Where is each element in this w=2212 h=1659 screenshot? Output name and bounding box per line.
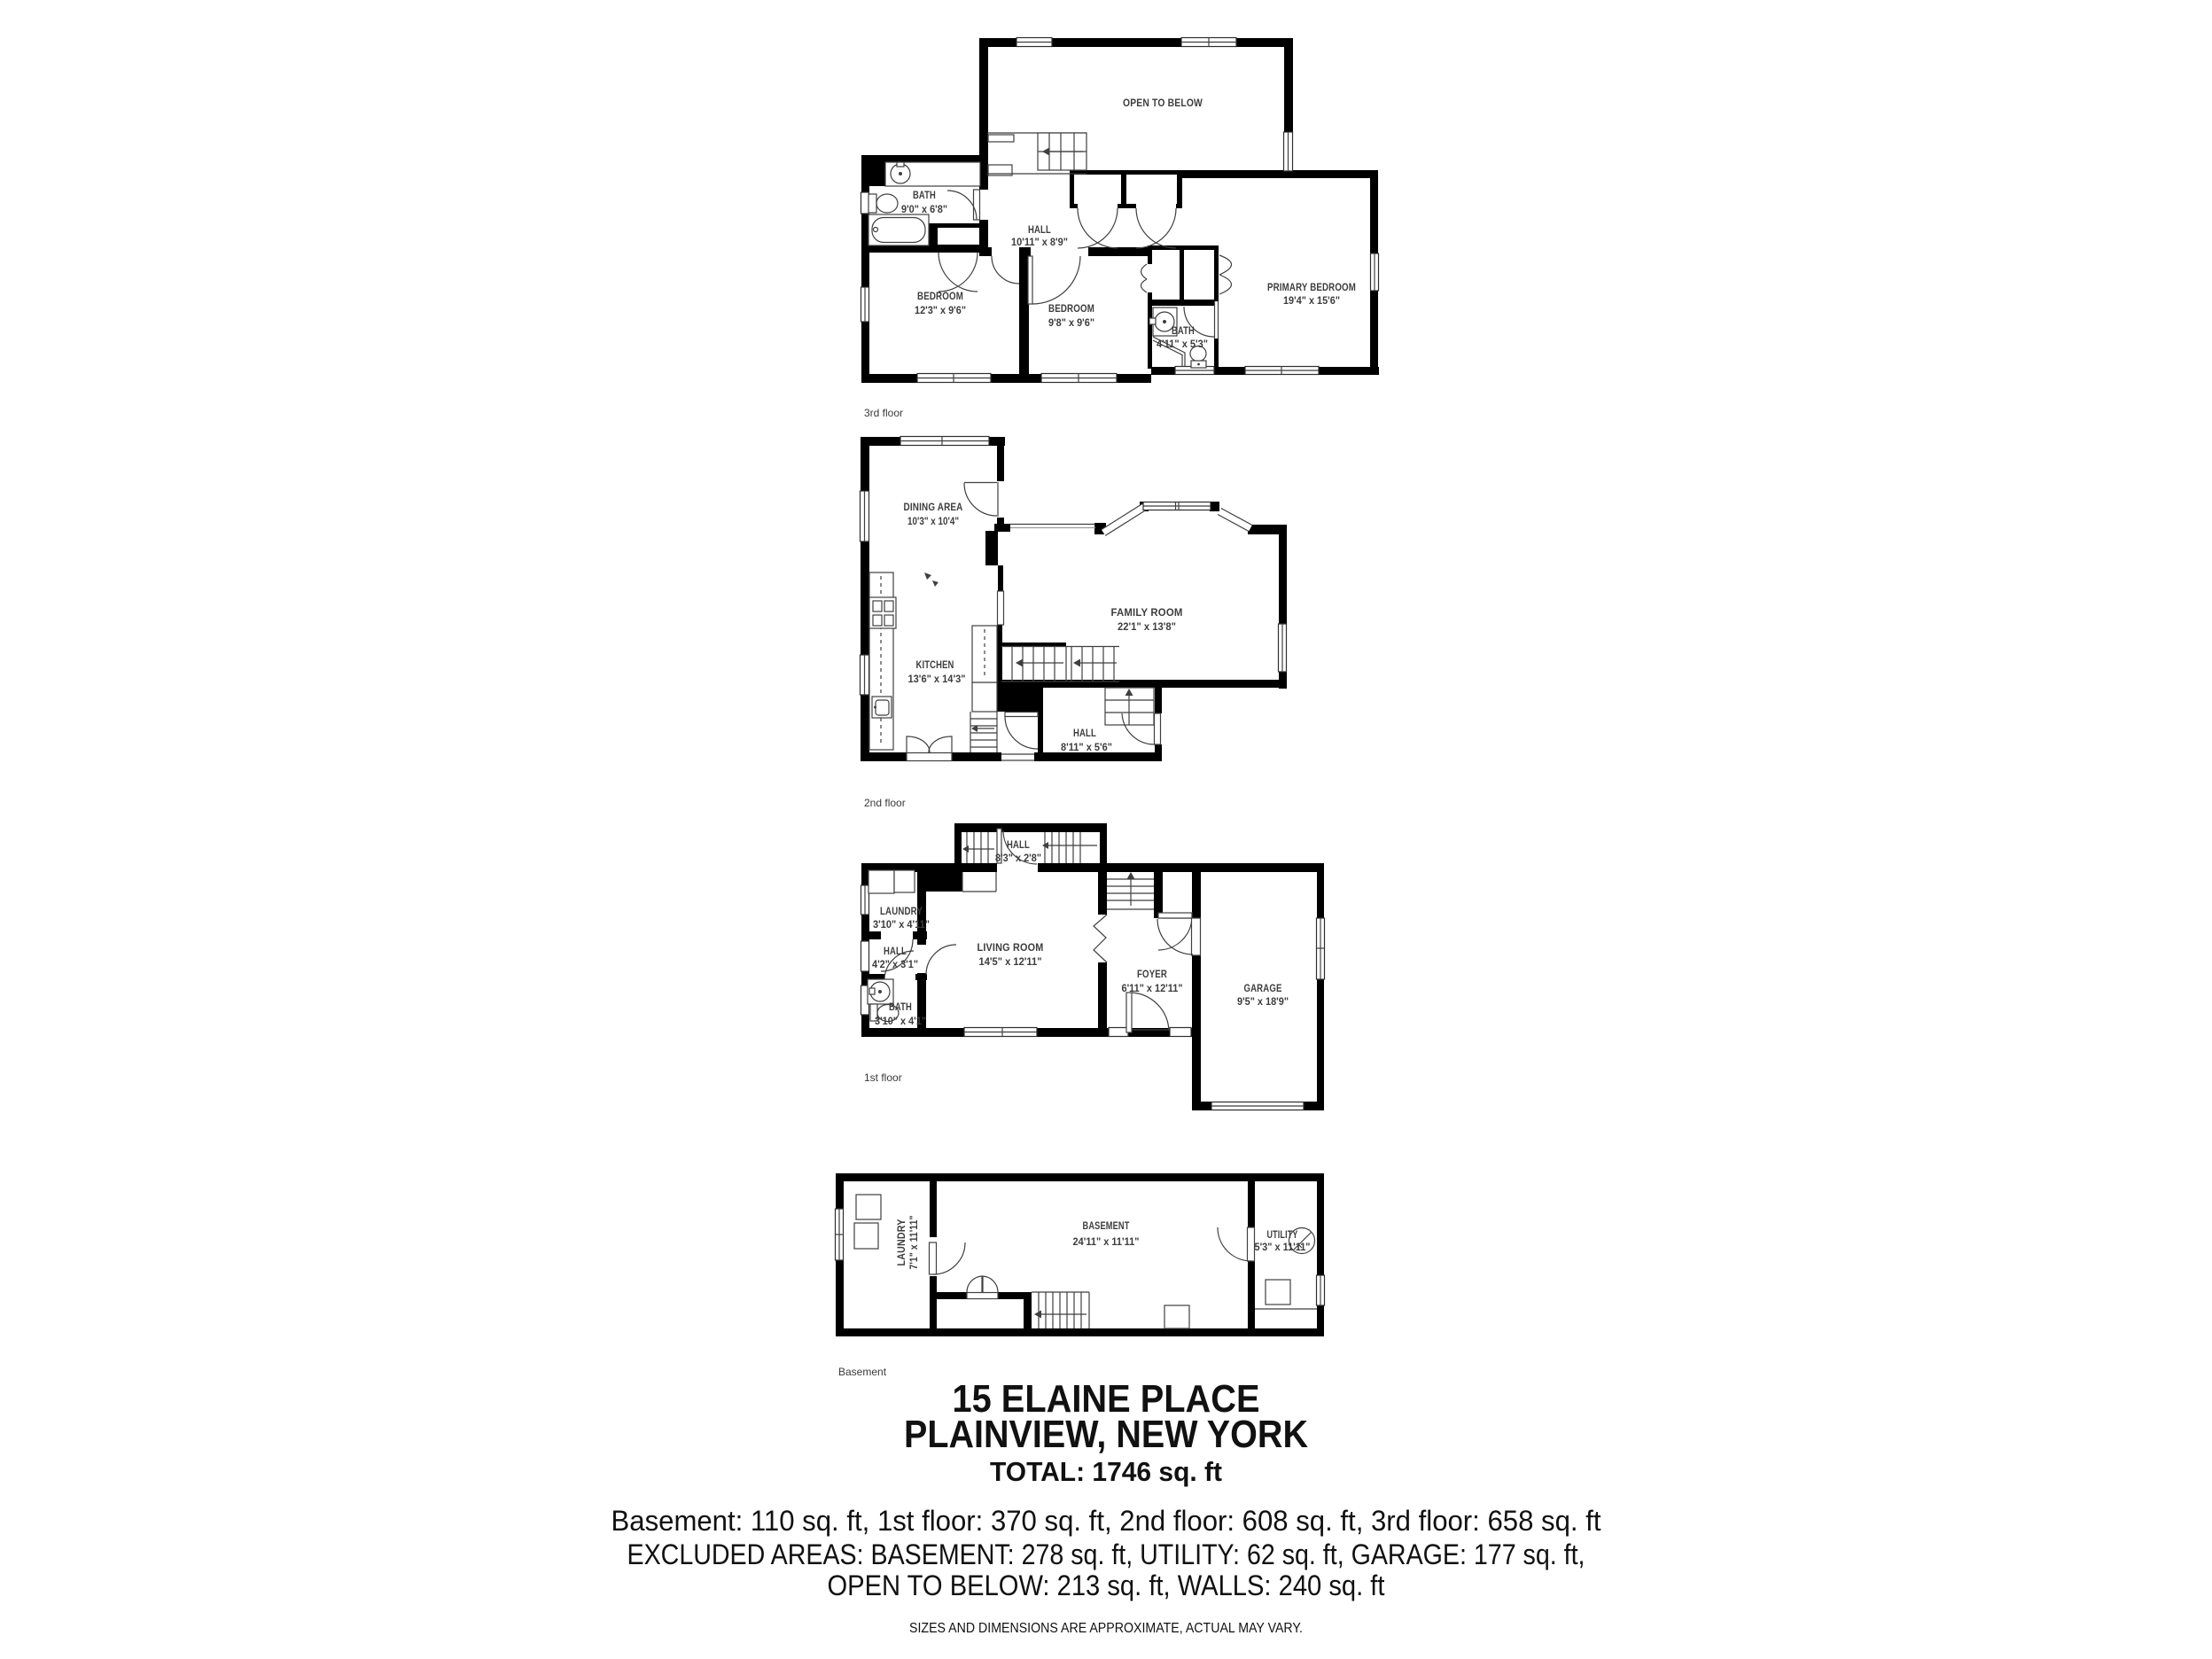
svg-text:9'0" x 6'8": 9'0" x 6'8" (901, 203, 947, 215)
svg-text:6'11" x 12'11": 6'11" x 12'11" (1122, 982, 1183, 994)
svg-text:14'5" x 12'11": 14'5" x 12'11" (979, 955, 1042, 968)
svg-text:8'3" x 2'8": 8'3" x 2'8" (995, 852, 1041, 864)
svg-text:FAMILY ROOM: FAMILY ROOM (1111, 606, 1183, 619)
svg-text:GARAGE: GARAGE (1244, 982, 1282, 994)
svg-text:4'11" x 5'3": 4'11" x 5'3" (1157, 338, 1208, 350)
svg-text:24'11" x 11'11": 24'11" x 11'11" (1073, 1235, 1140, 1248)
svg-text:LAUNDRY: LAUNDRY (880, 905, 923, 917)
svg-text:TOTAL: 1746 sq. ft: TOTAL: 1746 sq. ft (990, 1456, 1222, 1487)
svg-text:HALL: HALL (884, 945, 907, 957)
svg-text:SIZES AND DIMENSIONS ARE APPRO: SIZES AND DIMENSIONS ARE APPROXIMATE, AC… (909, 1621, 1303, 1636)
svg-text:BATH: BATH (889, 1001, 912, 1013)
svg-text:1st floor: 1st floor (864, 1071, 902, 1084)
svg-text:HALL: HALL (1073, 727, 1096, 739)
svg-text:8'11" x 5'6": 8'11" x 5'6" (1061, 741, 1112, 753)
svg-text:2nd floor: 2nd floor (864, 797, 906, 809)
svg-text:OPEN TO BELOW: OPEN TO BELOW (1123, 97, 1203, 109)
svg-text:PRIMARY BEDROOM: PRIMARY BEDROOM (1267, 281, 1356, 293)
svg-text:OPEN TO BELOW: 213 sq. ft, WAL: OPEN TO BELOW: 213 sq. ft, WALLS: 240 sq… (828, 1569, 1385, 1601)
svg-text:LAUNDRY: LAUNDRY (895, 1219, 907, 1266)
svg-text:UTILITY: UTILITY (1267, 1228, 1298, 1241)
svg-text:3'10" x 4'11": 3'10" x 4'11" (873, 918, 930, 931)
svg-text:13'6" x 14'3": 13'6" x 14'3" (908, 673, 966, 685)
svg-text:LIVING ROOM: LIVING ROOM (977, 941, 1044, 954)
svg-text:Basement: 110 sq. ft, 1st floo: Basement: 110 sq. ft, 1st floor: 370 sq.… (611, 1505, 1601, 1537)
svg-text:BASEMENT: BASEMENT (1083, 1219, 1130, 1232)
svg-text:3'10" x 4'1": 3'10" x 4'1" (875, 1015, 926, 1027)
svg-text:KITCHEN: KITCHEN (916, 658, 954, 671)
svg-text:HALL: HALL (1028, 223, 1051, 236)
svg-text:10'3" x 10'4": 10'3" x 10'4" (907, 515, 959, 527)
svg-text:BEDROOM: BEDROOM (917, 290, 963, 302)
svg-text:BEDROOM: BEDROOM (1048, 302, 1094, 315)
svg-text:4'2" x 3'1": 4'2" x 3'1" (872, 958, 918, 970)
svg-text:19'4" x 15'6": 19'4" x 15'6" (1283, 294, 1340, 307)
svg-text:9'8" x 9'6": 9'8" x 9'6" (1048, 316, 1094, 329)
svg-text:EXCLUDED AREAS: BASEMENT: 278: EXCLUDED AREAS: BASEMENT: 278 sq. ft, UT… (627, 1538, 1585, 1570)
svg-text:22'1" x 13'8": 22'1" x 13'8" (1118, 620, 1176, 633)
svg-text:HALL: HALL (1007, 838, 1030, 851)
svg-text:PLAINVIEW, NEW YORK: PLAINVIEW, NEW YORK (904, 1413, 1308, 1456)
svg-text:12'3" x 9'6": 12'3" x 9'6" (915, 304, 966, 316)
svg-text:10'11" x 8'9": 10'11" x 8'9" (1011, 236, 1068, 248)
svg-text:3rd floor: 3rd floor (864, 407, 903, 419)
svg-text:DINING AREA: DINING AREA (904, 501, 963, 513)
svg-text:BATH: BATH (913, 189, 936, 201)
svg-text:FOYER: FOYER (1137, 968, 1167, 980)
svg-text:7'1" x 11'11": 7'1" x 11'11" (907, 1216, 920, 1270)
svg-text:5'3" x 11'11": 5'3" x 11'11" (1255, 1241, 1311, 1253)
svg-text:9'5" x 18'9": 9'5" x 18'9" (1237, 995, 1289, 1008)
svg-text:BATH: BATH (1172, 324, 1195, 337)
svg-text:Basement: Basement (838, 1366, 887, 1378)
